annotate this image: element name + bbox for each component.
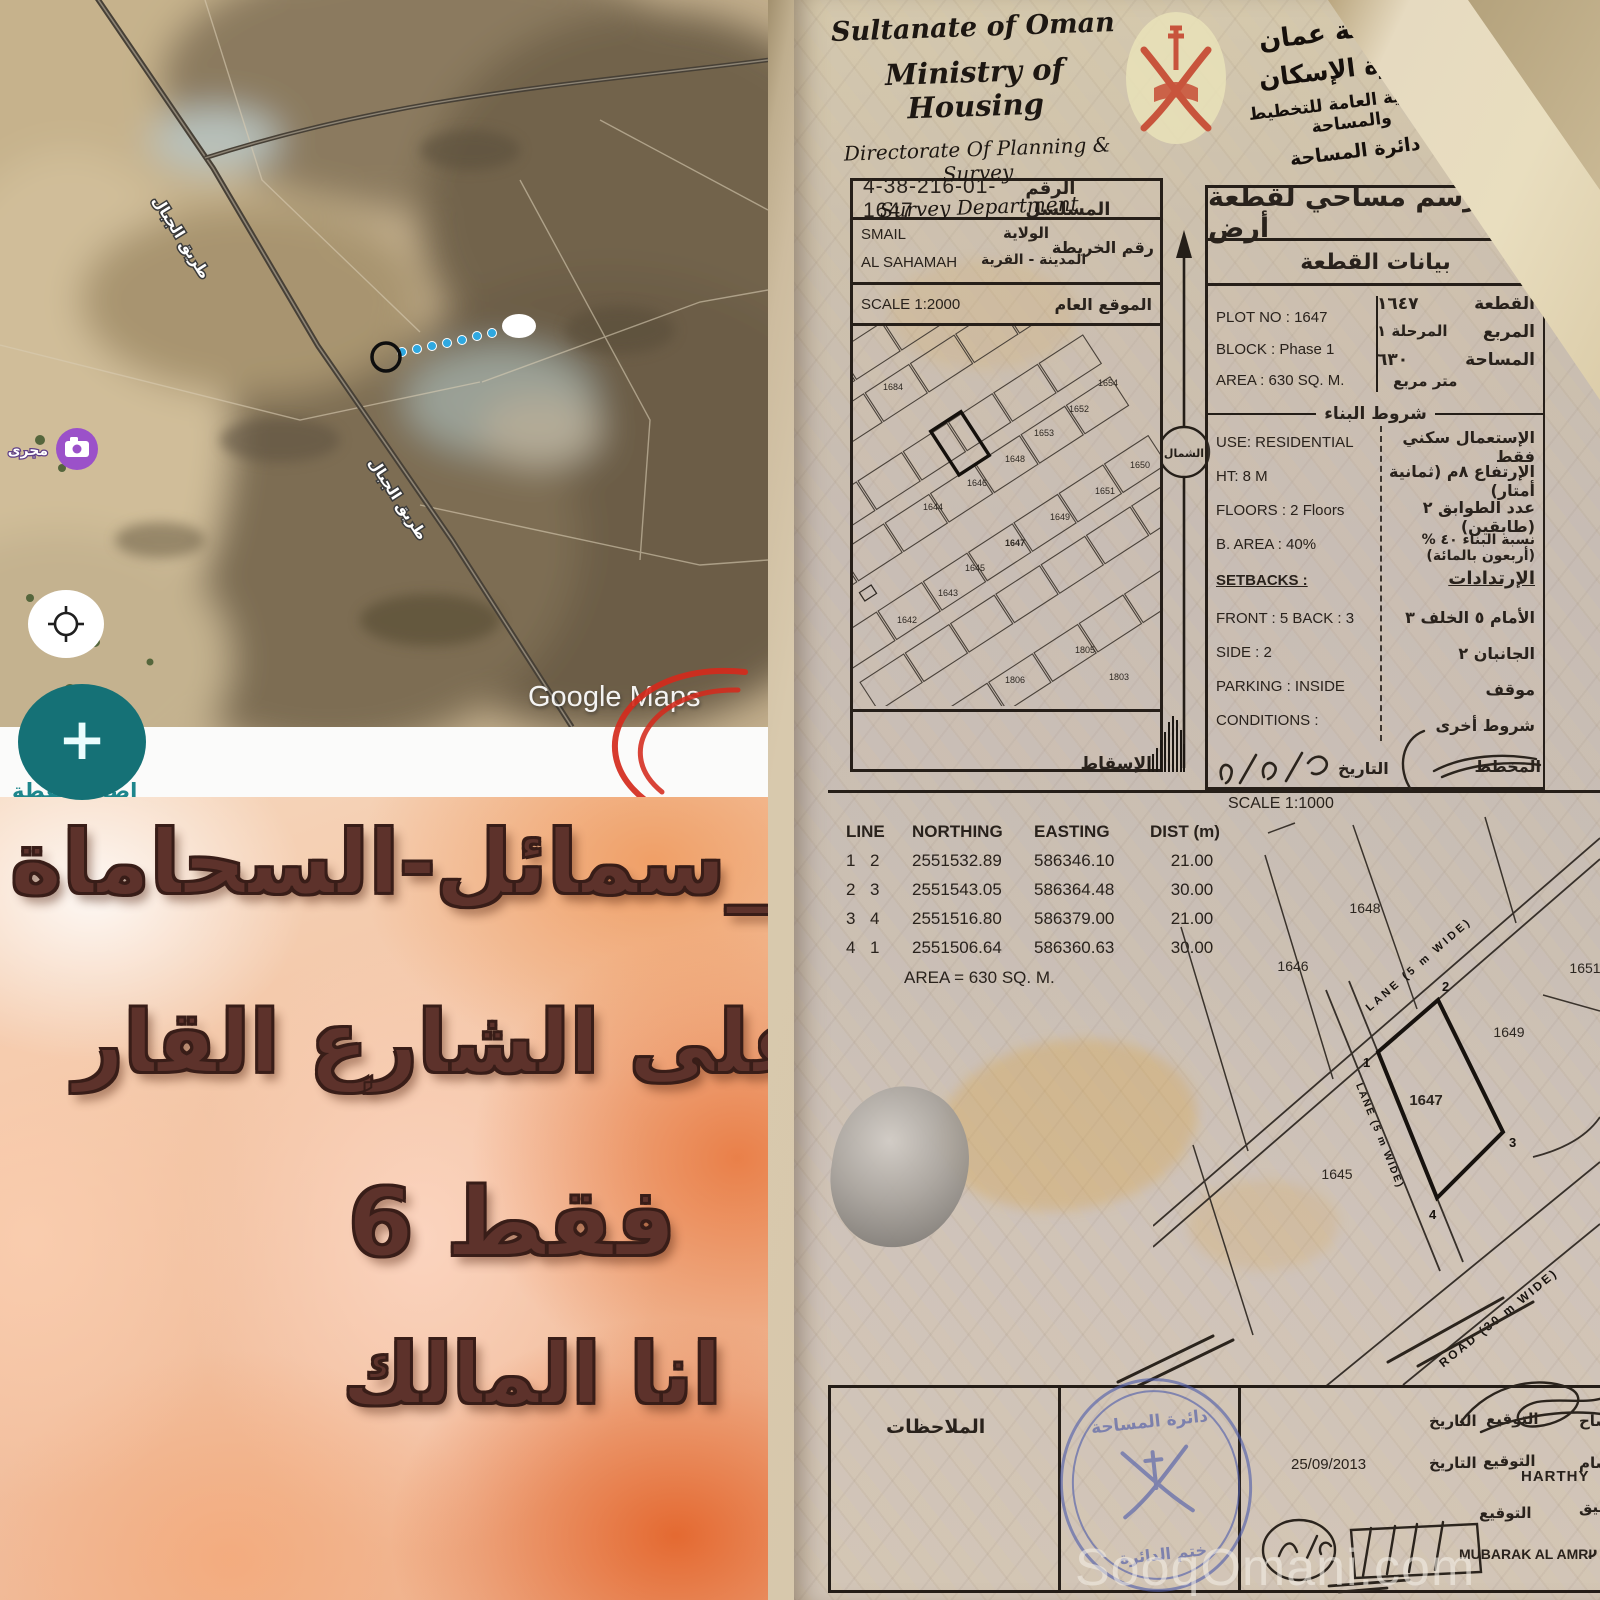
block-en: BLOCK : Phase 1 [1216, 334, 1344, 366]
ad-line-owner: انا المالك [148, 1325, 768, 1423]
header-english: Sultanate of Oman Ministry of Housing Di… [826, 7, 1125, 224]
svg-text:1654: 1654 [1098, 378, 1118, 388]
lane-label-upper: LANE (5 m WIDE) [1364, 916, 1475, 1014]
checker-label-fragment: قيق [1579, 1498, 1600, 1516]
camera-poi-marker[interactable] [56, 428, 98, 470]
use-ar: الإستعمال سكني فقط [1383, 428, 1535, 466]
date-value: 25/09/2013 [1291, 1456, 1366, 1473]
front-back-en: FRONT : 5 BACK : 3 [1216, 610, 1386, 627]
svg-text:3: 3 [1509, 1135, 1516, 1150]
map-number-label: رقم الخريطة [1052, 238, 1154, 257]
floors-ar: عدد الطوابق ٢ (طابقين) [1383, 498, 1535, 536]
plot-identity-en: PLOT NO : 1647 BLOCK : Phase 1 AREA : 63… [1216, 302, 1344, 397]
side-ar: الجانبان ٢ [1383, 644, 1535, 663]
header-directorate: Directorate Of Planning & Survey [831, 132, 1124, 190]
parking-ar: موقف [1383, 680, 1535, 699]
svg-text:1647: 1647 [1409, 1092, 1442, 1109]
neighbor-boundaries [1181, 817, 1600, 1335]
listing-composite: طريق الجبال طريق الجبال مجرى [0, 0, 1600, 1600]
svg-text:1648: 1648 [1349, 900, 1380, 916]
setbacks-en: SETBACKS : [1216, 572, 1308, 589]
svg-text:1651: 1651 [1569, 960, 1600, 976]
site-watermark: SooqOmani.com [1075, 1538, 1475, 1598]
svg-text:1643: 1643 [938, 588, 958, 598]
north-label: الشمال [1164, 447, 1204, 460]
site-plan-scale: SCALE 1:2000 [861, 296, 960, 313]
svg-text:1: 1 [1363, 1055, 1370, 1070]
notes-label: الملاحظات [886, 1416, 985, 1438]
location-label: الموقع العام [1055, 295, 1152, 314]
plot-data-section-label: بيانات القطعة [1300, 250, 1451, 275]
svg-text:1651: 1651 [1095, 486, 1115, 496]
ht-ar: الإرتفاع ٨م (ثمانية أمتار) [1383, 462, 1535, 500]
ht-en: HT: 8 M [1216, 468, 1268, 485]
svg-text:1646: 1646 [1277, 958, 1308, 974]
survey-document-photo: Sultanate of Oman Ministry of Housing Di… [768, 0, 1600, 1600]
svg-text:1645: 1645 [1321, 1166, 1352, 1182]
detail-plan-scale: SCALE 1:1000 [1228, 795, 1334, 813]
svg-text:1642: 1642 [897, 615, 917, 625]
svg-text:2: 2 [1442, 979, 1449, 994]
svg-text:1684: 1684 [883, 382, 903, 392]
ad-line-price: 6 فقط [128, 1169, 768, 1278]
svg-text:1805: 1805 [1075, 645, 1095, 655]
google-maps-watermark: Google Maps [528, 681, 701, 714]
side-en: SIDE : 2 [1216, 644, 1272, 661]
floors-en: FLOORS : 2 Floors [1216, 502, 1344, 519]
conditions-en: CONDITIONS : [1216, 712, 1319, 729]
ad-text-panel: سمائل-السحاماة_ على الشارع القار 6 فقط ا… [0, 797, 768, 1600]
svg-text:1650: 1650 [1130, 460, 1150, 470]
detail-plot-plan: 1 2 3 4 1648 1646 1651 1649 1647 1645 LA… [1153, 815, 1600, 1385]
wilayat-label: الولاية [1003, 224, 1049, 242]
planner-label: المخطط [1475, 757, 1541, 776]
svg-text:1646: 1646 [967, 478, 987, 488]
barea-en: B. AREA : 40% [1216, 536, 1316, 553]
setbacks-ar: الإرتدادات [1383, 568, 1535, 589]
map-add-button[interactable]: + [18, 684, 146, 800]
draftsman-label-fragment: سام [1579, 1454, 1600, 1472]
handwritten-date [1216, 743, 1336, 791]
svg-text:1653: 1653 [1034, 428, 1054, 438]
signature-1 [1451, 1374, 1600, 1444]
ad-line-location: سمائل-السحاماة_ [6, 811, 768, 914]
area-en: AREA : 630 SQ. M. [1216, 365, 1344, 397]
plot-identity-ar: القطعة١٦٤٧ المربعالمرحلة ١ المساحة٦٣٠ [1377, 294, 1535, 370]
front-back-ar: الأمام ٥ الخلف ٣ [1383, 608, 1535, 627]
end-point-marker[interactable] [502, 314, 536, 338]
ad-line-street: على الشارع القار [58, 993, 768, 1093]
parking-en: PARKING : INSIDE [1216, 678, 1345, 695]
site-plan-numbers: 1684 1654 1652 1653 1648 1646 1644 1650 … [883, 378, 1150, 685]
barcode [1146, 710, 1186, 774]
date-label-r2: التاريخ [1429, 1454, 1477, 1472]
conditions-title-row: شروط البناء [1208, 404, 1543, 424]
barea-ar: نسبة البناء ٤٠ % (أربعون بالمائة) [1383, 532, 1535, 564]
svg-text:4: 4 [1429, 1207, 1437, 1222]
svg-text:1647: 1647 [1005, 538, 1025, 548]
projection-label: الإسقاط [1081, 754, 1152, 774]
plot-table: رسم مساحي لقطعة أرض بيانات القطعة PLOT N… [1205, 185, 1545, 790]
serial-table: 4-38-216-01-1647 الرقم المسلسل SMAIL AL … [850, 178, 1163, 772]
svg-text:1648: 1648 [1005, 454, 1025, 464]
svg-text:1649: 1649 [1493, 1024, 1524, 1040]
lanes [1153, 838, 1600, 1385]
plus-icon: + [58, 710, 107, 768]
header-ministry: Ministry of Housing [828, 50, 1122, 128]
plan-date-label: التاريخ [1338, 759, 1389, 778]
conditions-zone: USE: RESIDENTIAL HT: 8 M FLOORS : 2 Floo… [1208, 426, 1543, 741]
svg-text:1803: 1803 [1109, 672, 1129, 682]
area-unit: متر مربع [1393, 372, 1457, 390]
svg-text:1649: 1649 [1050, 512, 1070, 522]
town-value: AL SAHAMAH [861, 254, 957, 271]
plot-no-en: PLOT NO : 1647 [1216, 302, 1344, 334]
plan-footer-strip: التاريخ المخطط [1208, 741, 1543, 793]
map-satellite-view[interactable]: طريق الجبال طريق الجبال مجرى [0, 0, 768, 727]
use-en: USE: RESIDENTIAL [1216, 434, 1354, 451]
svg-text:1806: 1806 [1005, 675, 1025, 685]
wilayat-value: SMAIL [861, 226, 906, 243]
manager-label-fragment: ر [1589, 1540, 1598, 1558]
general-site-plan: 1684 1654 1652 1653 1648 1646 1644 1650 … [853, 326, 1160, 706]
locate-button[interactable] [28, 590, 104, 658]
svg-text:1645: 1645 [965, 563, 985, 573]
svg-text:1644: 1644 [923, 502, 943, 512]
poi-label: مجرى [8, 443, 48, 459]
map-canvas[interactable]: طريق الجبال طريق الجبال مجرى [0, 0, 768, 727]
svg-text:1652: 1652 [1069, 404, 1089, 414]
